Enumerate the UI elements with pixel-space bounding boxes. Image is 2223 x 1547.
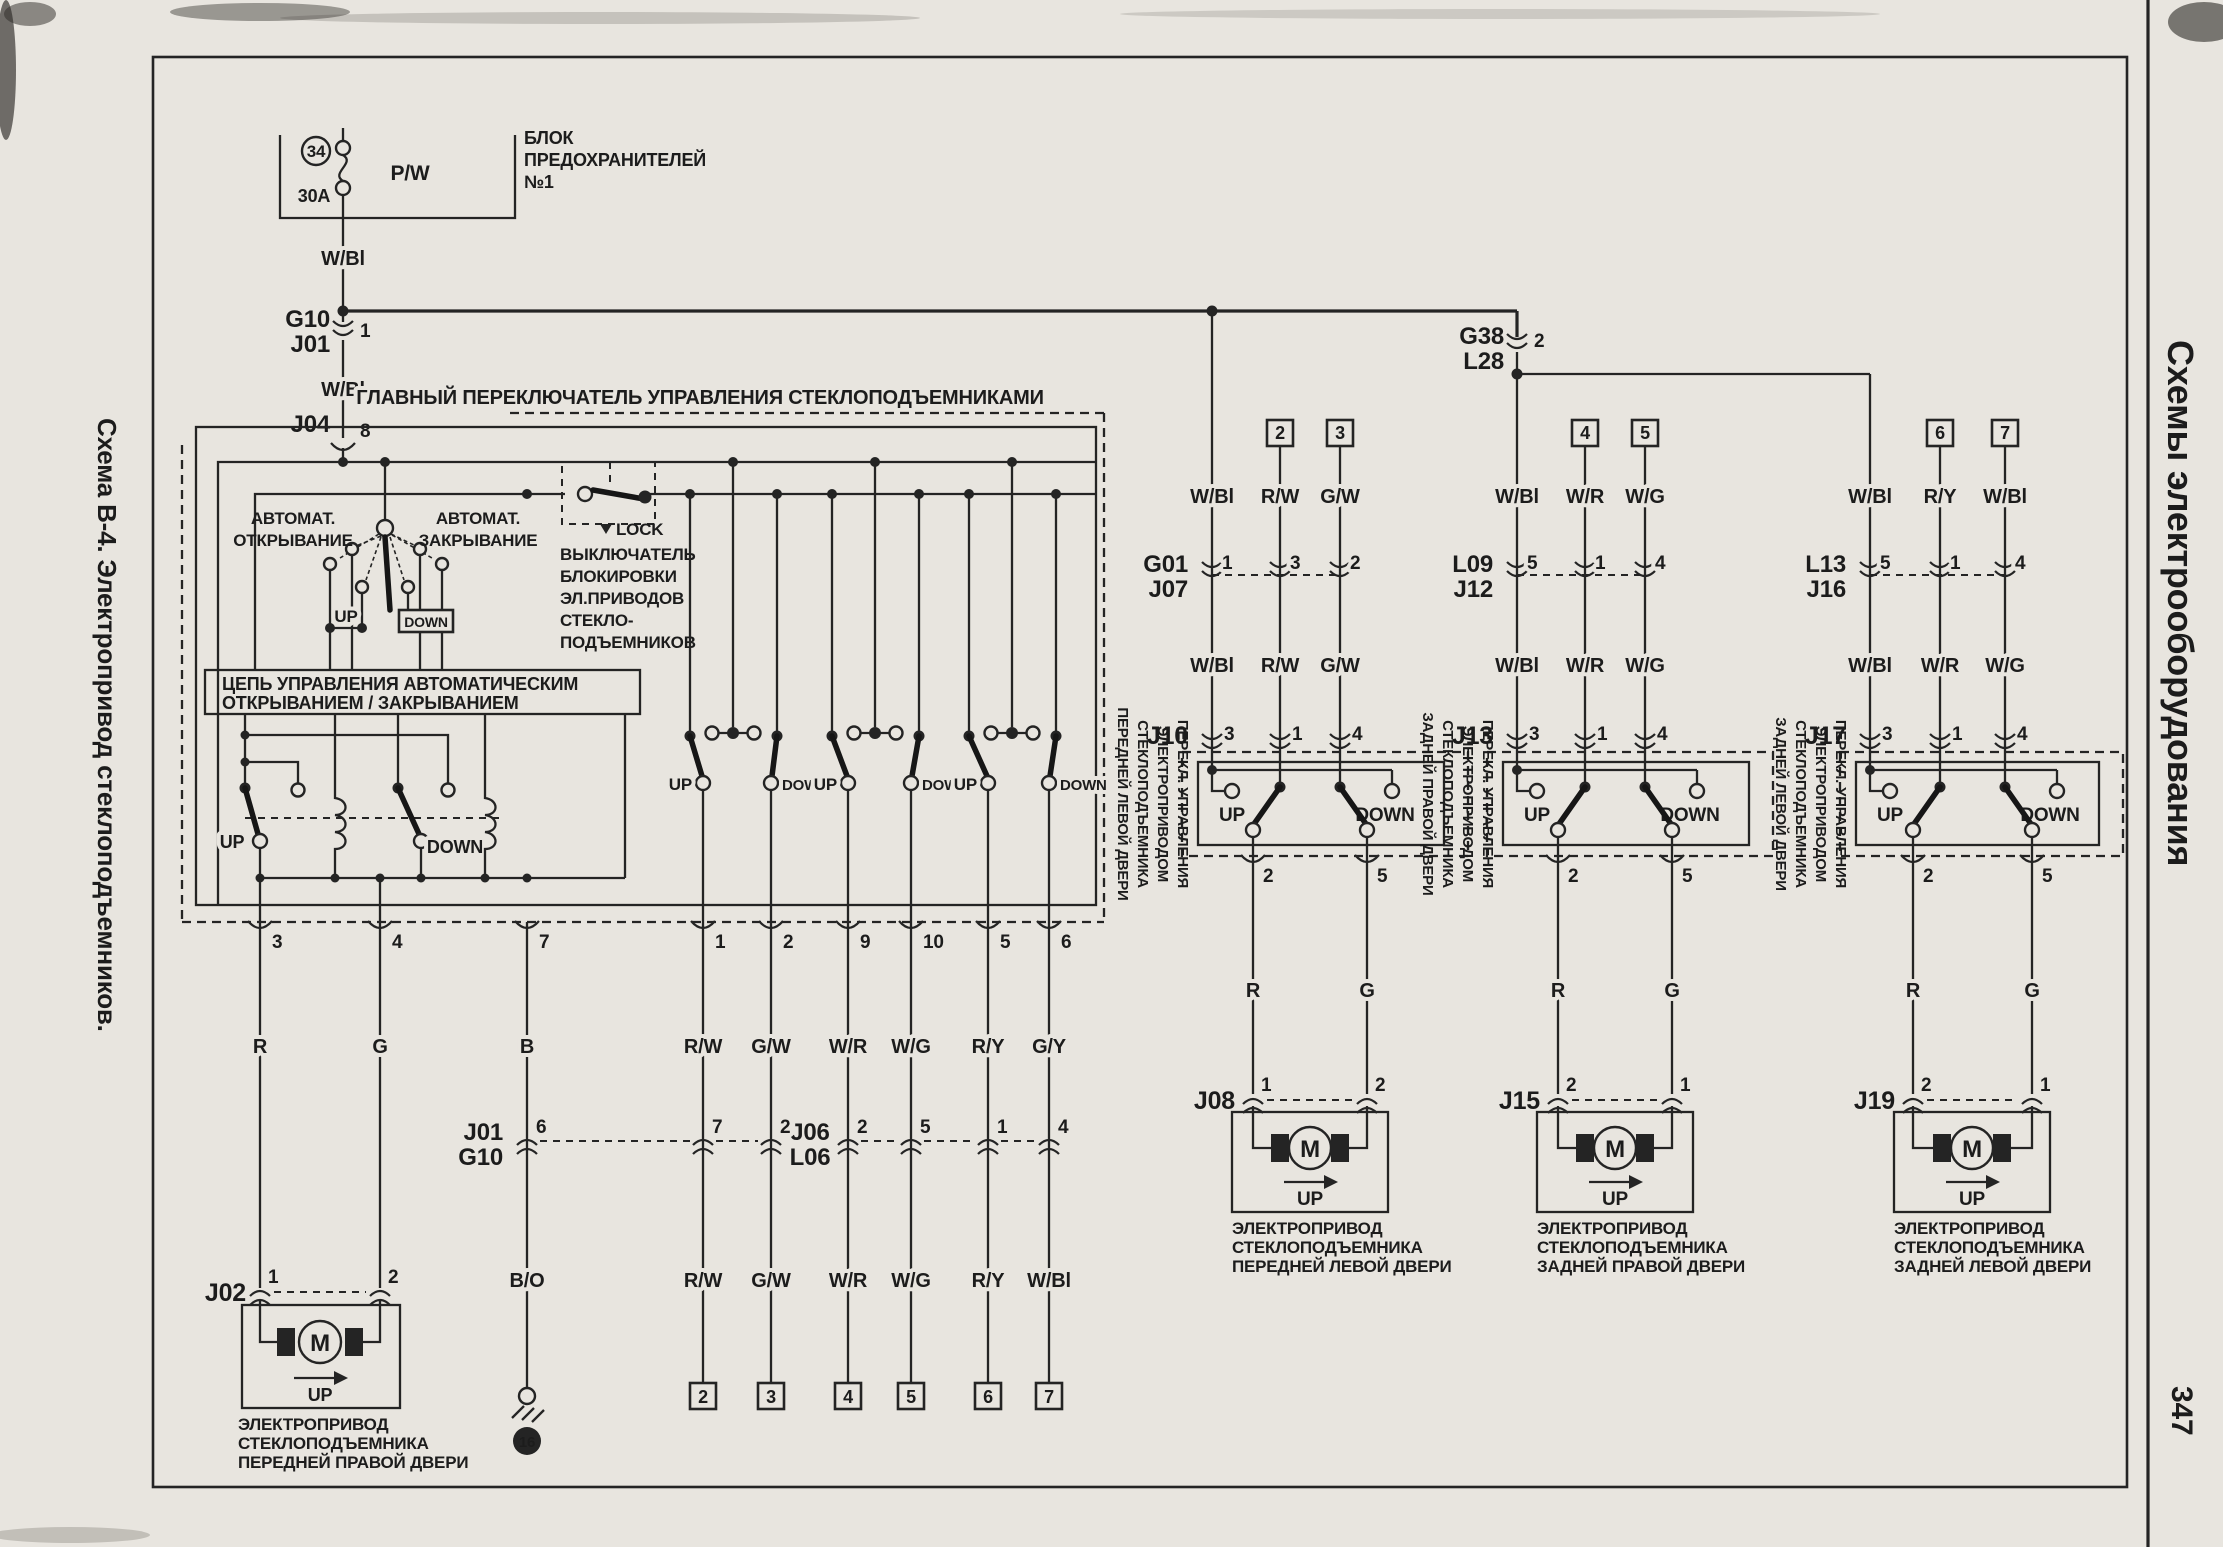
- wire-ref-box: 2: [1275, 423, 1285, 443]
- fuse-rating: 30A: [298, 186, 331, 206]
- pin-number: 5: [1000, 932, 1011, 953]
- wire-color-label: W/R: [829, 1270, 868, 1292]
- wire-color-label: W/Bl: [1190, 486, 1234, 508]
- pin-number: 1: [715, 932, 726, 953]
- switch-caption: СТЕКЛОПОДЪЕМНИКА: [1792, 720, 1809, 888]
- pin-number: 4: [2017, 724, 2028, 745]
- auto-close-label: ЗАКРЫВАНИЕ: [419, 531, 538, 550]
- pin-number: 4: [2015, 553, 2026, 574]
- motor-caption: ПЕРЕДНЕЙ ЛЕВОЙ ДВЕРИ: [1232, 1257, 1451, 1276]
- pin-number: 3: [1290, 553, 1300, 574]
- down-label: DOWN: [1060, 777, 1107, 794]
- wire-color-label: W/G: [1625, 486, 1664, 508]
- pin-number: 1: [1261, 1075, 1272, 1096]
- pin-number: 2: [1375, 1075, 1385, 1096]
- wire-color-label: G/Y: [1032, 1036, 1067, 1058]
- wire-ref-box: 3: [1335, 423, 1345, 443]
- paper-background: [0, 0, 2223, 1547]
- lock-switch-label: БЛОКИРОВКИ: [560, 567, 677, 586]
- pin-number: 1: [1597, 724, 1608, 745]
- pin-number: 3: [1529, 724, 1539, 745]
- lock-label: LOCK: [616, 520, 664, 539]
- fuse-block-label: ПРЕДОХРАНИТЕЛЕЙ: [524, 149, 706, 170]
- wire-color-label: R: [253, 1036, 268, 1058]
- wire-ref-box: 7: [1044, 1387, 1054, 1407]
- switch-caption: ЭЛЕКТРОПРИВОДОМ: [1812, 726, 1829, 882]
- pin-number: 1: [1950, 553, 1961, 574]
- wire-color-label: G: [1359, 980, 1374, 1002]
- up-label: UP: [814, 775, 837, 794]
- ground-ref-number: 16: [519, 1434, 535, 1451]
- pin-number: 2: [857, 1117, 867, 1138]
- motor-caption: ЭЛЕКТРОПРИВОД: [1537, 1219, 1687, 1238]
- switch-caption: ЗАДНЕЙ ПРАВОЙ ДВЕРИ: [1419, 712, 1437, 895]
- wire-color-label: G/W: [751, 1270, 791, 1292]
- motor-caption: СТЕКЛОПОДЪЕМНИКА: [1232, 1238, 1423, 1257]
- wire-color-label: R/Y: [972, 1270, 1006, 1292]
- wire-color-label: R/W: [684, 1270, 723, 1292]
- pin-number: 4: [1058, 1117, 1069, 1138]
- motor-caption: ЭЛЕКТРОПРИВОД: [238, 1415, 388, 1434]
- wire-ref-box: 7: [2000, 423, 2010, 443]
- pin-number: 2: [1923, 866, 1933, 887]
- connector-name: G01: [1143, 551, 1188, 578]
- page-number: 347: [2165, 1386, 2198, 1435]
- connector-name: J15: [1499, 1087, 1540, 1115]
- pin-number: 2: [1350, 553, 1360, 574]
- pin-number: 6: [1061, 932, 1071, 953]
- pin-number: 1: [268, 1267, 279, 1288]
- connector-name: J01: [291, 331, 330, 358]
- connector-pin: 8: [360, 421, 370, 442]
- up-label: UP: [1297, 1189, 1324, 1210]
- switch-caption: ПЕРЕДНЕЙ ЛЕВОЙ ДВЕРИ: [1114, 707, 1132, 900]
- pin-number: 2: [1534, 331, 1544, 352]
- pin-number: 2: [1263, 866, 1273, 887]
- connector-name: G38: [1459, 323, 1504, 350]
- wire-color-label: W/R: [829, 1036, 868, 1058]
- pin-number: 2: [1566, 1075, 1576, 1096]
- motor-symbol: M: [1300, 1136, 1320, 1163]
- pin-number: 1: [997, 1117, 1008, 1138]
- control-box-label: ОТКРЫВАНИЕМ / ЗАКРЫВАНИЕМ: [222, 693, 519, 713]
- wire-color-label: R/W: [684, 1036, 723, 1058]
- wire-ref-box: 5: [906, 1387, 916, 1407]
- pin-number: 4: [1657, 724, 1668, 745]
- connector-name: J19: [1854, 1087, 1895, 1115]
- switch-caption: СТЕКЛОПОДЪЕМНИКА: [1439, 720, 1456, 888]
- connector-name: L09: [1452, 551, 1493, 578]
- switch-caption: ПЕРЕКЛ. УПРАВЛЕНИЯ: [1174, 720, 1191, 888]
- wire-color-label: G/W: [1320, 486, 1360, 508]
- scanned-manual-page: Схема В-4. Электропривод стеклоподъемник…: [0, 0, 2223, 1547]
- pin-number: 2: [1568, 866, 1578, 887]
- auto-open-label: АВТОМАТ.: [251, 509, 335, 528]
- wire-color-label: W/G: [1625, 655, 1664, 677]
- wire-ref-box: 3: [766, 1387, 776, 1407]
- up-label: UP: [669, 775, 692, 794]
- connector-name: L13: [1805, 551, 1846, 578]
- up-label: UP: [1602, 1189, 1629, 1210]
- motor-symbol: M: [1962, 1136, 1982, 1163]
- wire-color-label: G: [1664, 980, 1679, 1002]
- wire-color-label: B: [520, 1036, 534, 1058]
- wire-color-label: B/O: [510, 1270, 545, 1292]
- wire-color-label: R/W: [1261, 486, 1300, 508]
- pin-number: 5: [1377, 866, 1388, 887]
- wire-color-label: W/G: [891, 1036, 930, 1058]
- wire-color-label: R/W: [1261, 655, 1300, 677]
- pin-number: 3: [1224, 724, 1234, 745]
- pin-number: 1: [1595, 553, 1606, 574]
- up-label: UP: [308, 1385, 333, 1405]
- auto-open-label: ОТКРЫВАНИЕ: [233, 531, 353, 550]
- wire-ref-box: 2: [698, 1387, 708, 1407]
- motor-caption: СТЕКЛОПОДЪЕМНИКА: [1537, 1238, 1728, 1257]
- fuse-number: 34: [307, 142, 326, 161]
- pin-number: 4: [1352, 724, 1363, 745]
- wire-color-label: W/Bl: [1190, 655, 1234, 677]
- pin-number: 4: [392, 932, 403, 953]
- connector-name: J08: [1194, 1087, 1235, 1115]
- wire-color-label: W/G: [1985, 655, 2024, 677]
- motor-symbol: M: [310, 1330, 330, 1357]
- motor-caption: ЭЛЕКТРОПРИВОД: [1894, 1219, 2044, 1238]
- main-switch-title: ГЛАВНЫЙ ПЕРЕКЛЮЧАТЕЛЬ УПРАВЛЕНИЯ СТЕКЛОП…: [356, 385, 1044, 409]
- wire-color-label: W/Bl: [1848, 486, 1892, 508]
- pin-number: 5: [1682, 866, 1693, 887]
- motor-caption: ЭЛЕКТРОПРИВОД: [1232, 1219, 1382, 1238]
- lock-switch-label: ПОДЪЕМНИКОВ: [560, 633, 696, 652]
- wire-color-label: G/W: [751, 1036, 791, 1058]
- wire-ref-box: 4: [843, 1387, 853, 1407]
- wire-color-label: W/R: [1566, 655, 1605, 677]
- connector-name: J06: [790, 1119, 829, 1146]
- switch-caption: ПЕРЕКЛ. УПРАВЛЕНИЯ: [1479, 720, 1496, 888]
- motor-caption: ПЕРЕДНЕЙ ПРАВОЙ ДВЕРИ: [238, 1453, 468, 1472]
- wire-color-label: R: [1906, 980, 1921, 1002]
- connector-name: J07: [1149, 576, 1188, 603]
- wire-color-label: W/G: [891, 1270, 930, 1292]
- pin-number: 3: [1882, 724, 1892, 745]
- wire-color-label: W/Bl: [1495, 655, 1539, 677]
- wire-color-label: R/Y: [1924, 486, 1958, 508]
- pin-number: 9: [860, 932, 870, 953]
- up-label: UP: [1524, 805, 1551, 826]
- pin-number: 7: [712, 1117, 722, 1138]
- connector-name: G10: [458, 1144, 503, 1171]
- connector-pin: 1: [360, 321, 371, 342]
- wire-color-label: W/Bl: [1027, 1270, 1071, 1292]
- fuse-wire-color: P/W: [390, 162, 429, 185]
- connector-name: L06: [790, 1144, 831, 1171]
- control-box-label: ЦЕПЬ УПРАВЛЕНИЯ АВТОМАТИЧЕСКИМ: [222, 674, 578, 694]
- connector-name: J12: [1454, 576, 1493, 603]
- motor-caption: ЗАДНЕЙ ПРАВОЙ ДВЕРИ: [1537, 1257, 1745, 1276]
- wire-color-label: W/Bl: [1495, 486, 1539, 508]
- pin-number: 3: [272, 932, 282, 953]
- switch-caption: ПЕРЕКЛ. УПРАВЛЕНИЯ: [1832, 720, 1849, 888]
- lock-switch-label: СТЕКЛО-: [560, 611, 633, 630]
- wire-ref-box: 6: [983, 1387, 993, 1407]
- down-label: DOWN: [404, 614, 448, 630]
- up-label: UP: [1959, 1189, 1986, 1210]
- fuse-block-label: №1: [524, 172, 554, 192]
- connector-name: G10: [285, 306, 330, 333]
- wire-color-label: W/Bl: [1848, 655, 1892, 677]
- connector-name: J16: [1807, 576, 1846, 603]
- connector-name: L28: [1463, 348, 1504, 375]
- pin-number: 7: [539, 932, 549, 953]
- wire-color-label: G/W: [1320, 655, 1360, 677]
- pin-number: 1: [1222, 553, 1233, 574]
- pin-number: 4: [1655, 553, 1666, 574]
- pin-number: 5: [2042, 866, 2053, 887]
- switch-caption: ЭЛЕКТРОПРИВОДОМ: [1459, 726, 1476, 882]
- lock-switch-label: ВЫКЛЮЧАТЕЛЬ: [560, 545, 696, 564]
- pin-number: 2: [780, 1117, 790, 1138]
- pin-number: 1: [1680, 1075, 1691, 1096]
- wire-color-label: G: [372, 1036, 387, 1058]
- wire-color-label: W/R: [1566, 486, 1605, 508]
- wiring-diagram: Схема В-4. Электропривод стеклоподъемник…: [0, 0, 2223, 1547]
- up-label: UP: [1877, 805, 1904, 826]
- switch-caption: ЗАДНЕЙ ЛЕВОЙ ДВЕРИ: [1772, 717, 1790, 891]
- wire-color-label: G: [2024, 980, 2039, 1002]
- pin-number: 1: [2040, 1075, 2051, 1096]
- pin-number: 1: [1952, 724, 1963, 745]
- up-label: UP: [954, 775, 977, 794]
- wire-color-label: R/Y: [972, 1036, 1006, 1058]
- wire-ref-box: 4: [1580, 423, 1590, 443]
- pin-number: 5: [920, 1117, 931, 1138]
- pin-number: 2: [783, 932, 793, 953]
- motor-caption: СТЕКЛОПОДЪЕМНИКА: [238, 1434, 429, 1453]
- pin-number: 6: [536, 1117, 546, 1138]
- left-margin-title: Схема В-4. Электропривод стеклоподъемник…: [92, 418, 122, 1032]
- lock-switch-label: ЭЛ.ПРИВОДОВ: [560, 589, 684, 608]
- pin-number: 1: [1292, 724, 1303, 745]
- motor-caption: ЗАДНЕЙ ЛЕВОЙ ДВЕРИ: [1894, 1257, 2091, 1276]
- up-label: UP: [1219, 805, 1246, 826]
- switch-caption: СТЕКЛОПОДЪЕМНИКА: [1134, 720, 1151, 888]
- motor-symbol: M: [1605, 1136, 1625, 1163]
- auto-close-label: АВТОМАТ.: [436, 509, 520, 528]
- pin-number: 2: [388, 1267, 398, 1288]
- up-label: UP: [220, 832, 245, 852]
- wire-color-label: R: [1246, 980, 1261, 1002]
- wire-ref-box: 6: [1935, 423, 1945, 443]
- down-label: DOWN: [427, 837, 483, 857]
- motor-caption: СТЕКЛОПОДЪЕМНИКА: [1894, 1238, 2085, 1257]
- wire-color-label: W/Bl: [321, 248, 365, 270]
- connector-name: J04: [291, 411, 331, 438]
- pin-number: 2: [1921, 1075, 1931, 1096]
- switch-caption: ЭЛЕКТРОПРИВОДОМ: [1154, 726, 1171, 882]
- pin-number: 5: [1527, 553, 1538, 574]
- wire-ref-box: 5: [1640, 423, 1650, 443]
- wire-color-label: W/Bl: [1983, 486, 2027, 508]
- wire-color-label: R: [1551, 980, 1566, 1002]
- connector-name: J02: [205, 1279, 246, 1307]
- pin-number: 5: [1880, 553, 1891, 574]
- connector-name: J01: [464, 1119, 503, 1146]
- right-margin-title: Схемы электрооборудования: [2160, 340, 2201, 866]
- up-label: UP: [334, 607, 357, 626]
- fuse-block-label: БЛОК: [524, 128, 575, 148]
- wire-color-label: W/R: [1921, 655, 1960, 677]
- pin-number: 10: [923, 932, 944, 953]
